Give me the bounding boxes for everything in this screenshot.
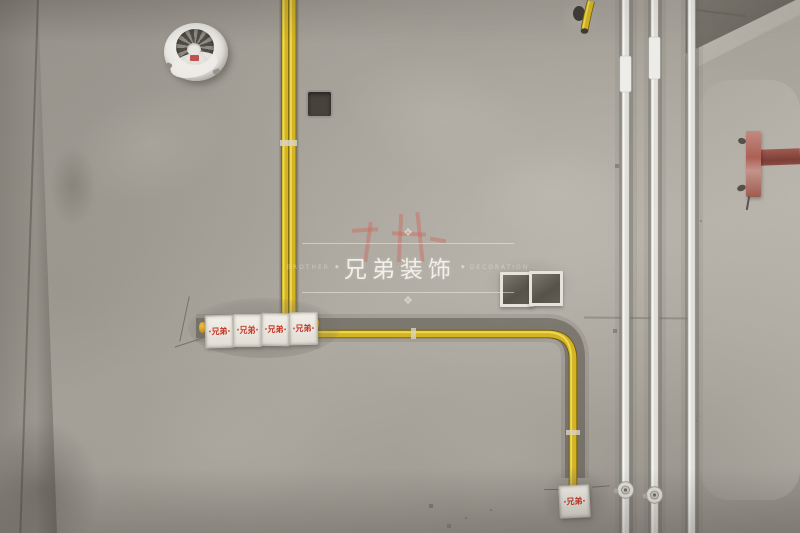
- watermark: ❖ BROTHER ◆ 兄弟装饰 ◆ DECORATION ❖: [296, 204, 520, 304]
- white-conduit-1: [620, 0, 631, 533]
- cable-tie: [280, 140, 297, 146]
- junction-box-label: ·兄弟·: [292, 323, 314, 335]
- watermark-brand-cn: 兄弟装饰: [344, 250, 456, 284]
- watermark-separator: ◆: [461, 264, 465, 270]
- junction-box-label: ·兄弟·: [264, 324, 286, 336]
- watermark-divider-bottom: [302, 292, 514, 293]
- watermark-ornament-top: ❖: [296, 226, 520, 239]
- junction-box: ·兄弟·: [289, 312, 319, 346]
- switch-box-right: [529, 271, 563, 306]
- conduit-coupler: [620, 56, 631, 92]
- junction-box: ·兄弟·: [261, 313, 291, 347]
- junction-box: ·兄弟·: [205, 315, 235, 349]
- photo-canvas: ·兄弟· ·兄弟· ·兄弟· ·兄弟· ·兄弟· ❖ BROTHER ◆: [0, 0, 800, 533]
- watermark-divider-top: [302, 243, 514, 244]
- yellow-conduit-horizontal-run: [296, 318, 580, 487]
- junction-box: ·兄弟·: [233, 314, 262, 347]
- junction-box-label: ·兄弟·: [236, 325, 258, 337]
- detector-mount-tab: [212, 68, 220, 75]
- pipe-outline: [314, 334, 573, 487]
- detector-label-sticker: [190, 55, 199, 61]
- watermark-text-row: BROTHER ◆ 兄弟装饰 ◆ DECORATION: [296, 248, 520, 286]
- junction-box-label: ·兄弟·: [208, 325, 230, 337]
- cable-tie: [566, 430, 580, 435]
- white-conduit-2: [649, 0, 660, 533]
- bracket-wire: [746, 196, 750, 210]
- watermark-brand-en-left: BROTHER: [287, 264, 330, 271]
- yellow-conduit-vertical-pair: [280, 0, 297, 331]
- conduit-coupler: [649, 37, 660, 79]
- bracket-arm: [759, 148, 800, 165]
- white-conduit-3: [690, 0, 692, 533]
- bottom-vignette: [0, 468, 800, 533]
- mounting-bracket: [735, 128, 800, 214]
- top-vignette: [0, 0, 800, 42]
- cable-tie: [411, 328, 416, 339]
- bracket-plate: [746, 131, 761, 197]
- pipe-highlight: [314, 332, 571, 487]
- watermark-separator: ◆: [335, 264, 339, 270]
- pipe-body: [314, 334, 573, 487]
- watermark-ornament-bottom: ❖: [296, 294, 520, 307]
- watermark-brand-en-right: DECORATION: [470, 264, 530, 271]
